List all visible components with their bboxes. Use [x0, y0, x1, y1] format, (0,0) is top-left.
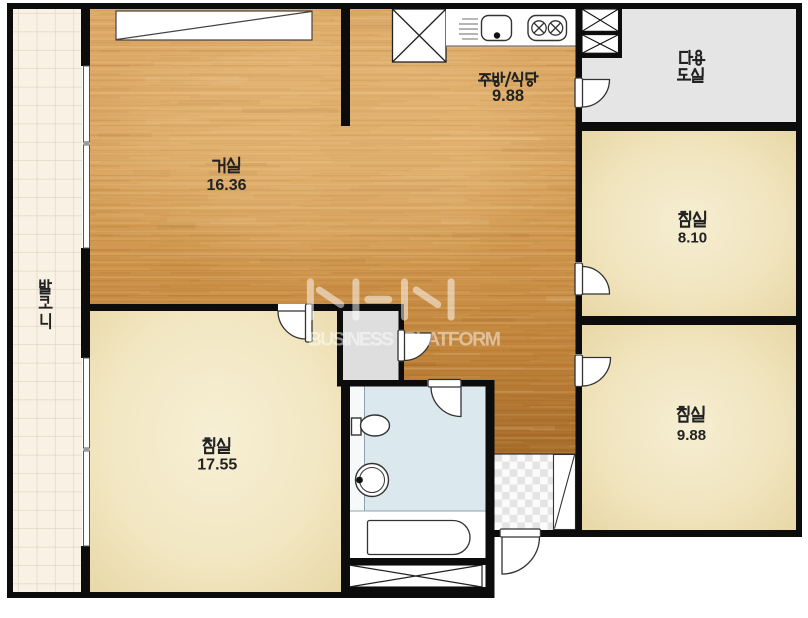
svg-text:9.88: 9.88 [677, 427, 706, 444]
svg-text:PLATFORM: PLATFORM [404, 329, 501, 351]
svg-text:9.88: 9.88 [492, 87, 524, 105]
svg-text:16.36: 16.36 [206, 177, 246, 194]
svg-text:BUSINESS: BUSINESS [308, 329, 394, 351]
svg-text:8.10: 8.10 [678, 230, 707, 247]
svg-text:17.55: 17.55 [197, 457, 237, 474]
